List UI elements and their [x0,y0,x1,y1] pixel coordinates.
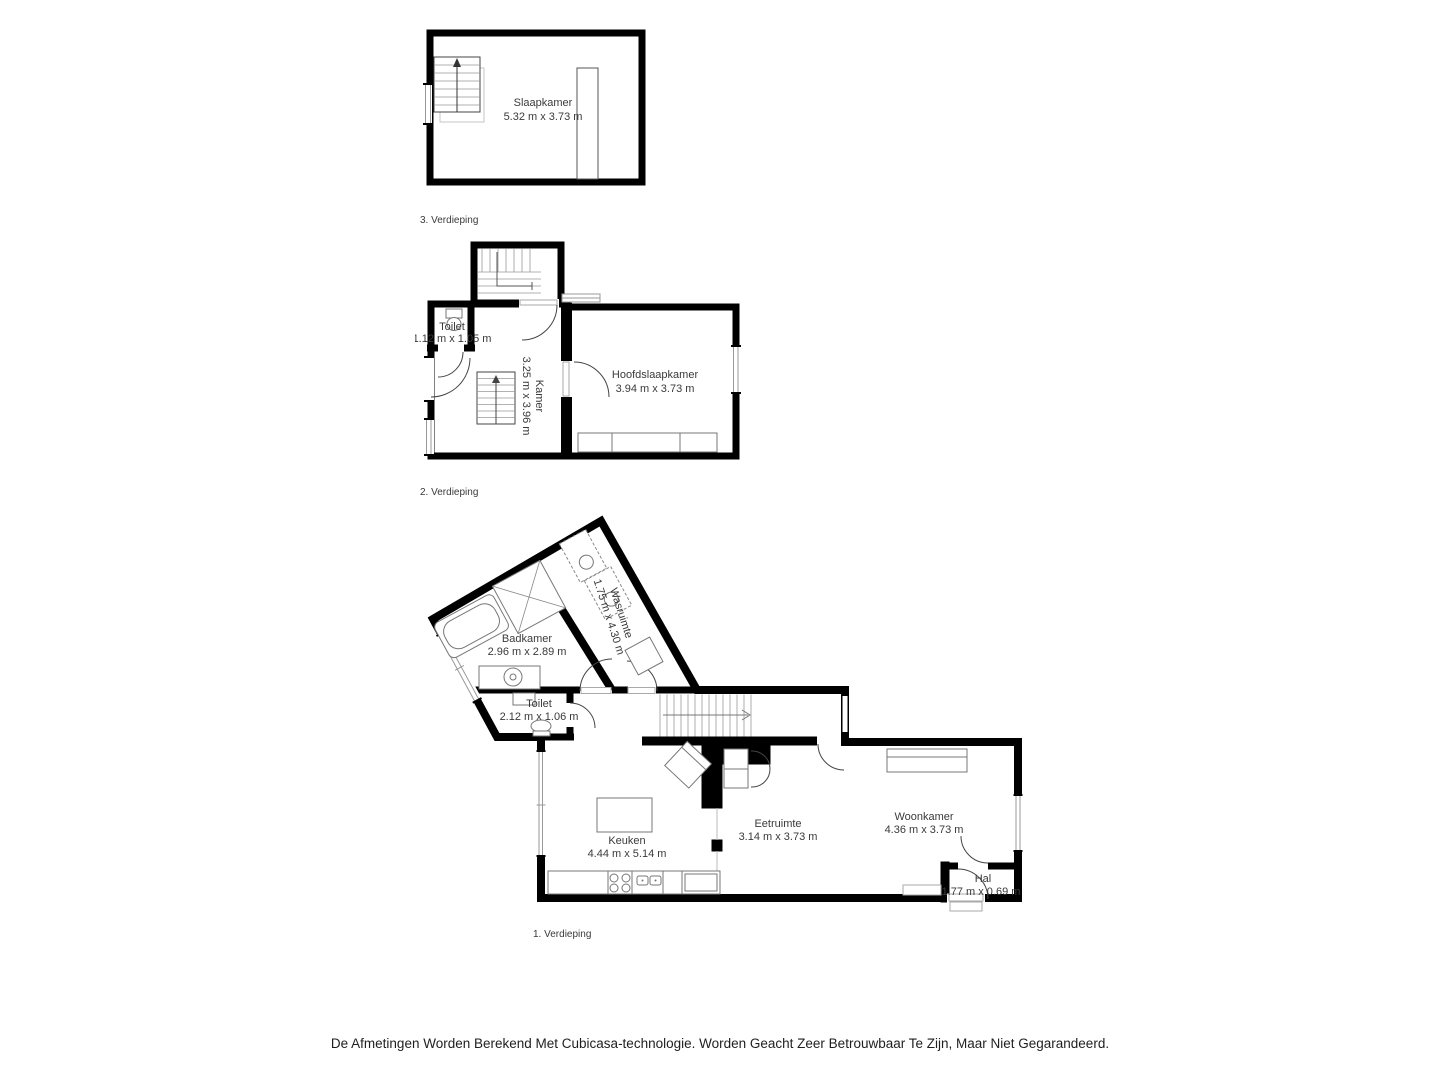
sink-icon [479,666,540,689]
kitchen-counter [548,871,720,894]
room-name: Woonkamer [894,811,953,823]
room-dims: 3.14 m x 3.73 m [739,831,818,843]
stairs-icon [477,372,515,424]
toilet-icon [446,309,462,318]
door-leaf [581,688,611,694]
room-dims: 1.12 m x 1.05 m [415,333,491,345]
kitchen-island [597,798,652,832]
disclaimer-text: De Afmetingen Worden Berekend Met Cubica… [0,1036,1440,1051]
room-dims: 2.12 m x 1.06 m [500,711,579,723]
room-dims: 3.94 m x 3.73 m [616,383,695,395]
floor-label-2: 2. Verdieping [420,487,478,498]
room-name: Toilet [439,321,465,333]
room-dims: 1.77 m x 0.69 m [942,886,1021,898]
window [423,84,432,124]
floorplan-2: Toilet 1.12 m x 1.05 m Kamer 3.25 m x 3.… [415,235,750,470]
room-name: Toilet [526,698,552,710]
room-name: Eetruimte [754,818,801,830]
room-label-woonkamer: Woonkamer 4.36 m x 3.73 m [885,811,964,836]
wardrobe-icon [578,433,717,452]
room-dims: 5.32 m x 3.73 m [504,111,583,123]
floorplan-3: Slaapkamer 5.32 m x 3.73 m [415,20,660,195]
floorplan-1: Badkamer 2.96 m x 2.89 m Wasruimte 1.75 … [425,505,1035,915]
window [731,346,741,393]
window [424,419,434,455]
stairs-icon [434,57,484,122]
room-dims: 4.44 m x 5.14 m [588,848,667,860]
corridor-opening [843,696,848,732]
window [537,751,546,856]
room-dims: 4.36 m x 3.73 m [885,824,964,836]
room-name: Badkamer [502,633,552,645]
window [562,294,600,302]
window [1014,795,1023,851]
door-leaf [628,688,655,694]
door-opening [817,737,841,746]
stair-enclosure [474,245,561,303]
room-dims: 2.96 m x 2.89 m [488,646,567,658]
closet-icon [577,68,598,179]
fridge-icon [685,874,717,891]
room-name: Hoofdslaapkamer [612,369,699,381]
floor-label-3: 3. Verdieping [420,215,478,226]
sofa-icon [887,749,967,772]
room-name: Slaapkamer [514,97,573,109]
cupboard-icon [724,749,748,788]
floorplan-page: { "floors": [ { "label": "3. Verdieping"… [0,0,1440,1080]
room-dims: 3.25 m x 3.96 m [520,357,532,436]
room-name: Keuken [608,835,645,847]
cabinet-icon [903,885,941,895]
room-name: Kamer [533,380,545,413]
floor-label-1: 1. Verdieping [533,929,591,940]
room-name: Hal [975,873,992,885]
